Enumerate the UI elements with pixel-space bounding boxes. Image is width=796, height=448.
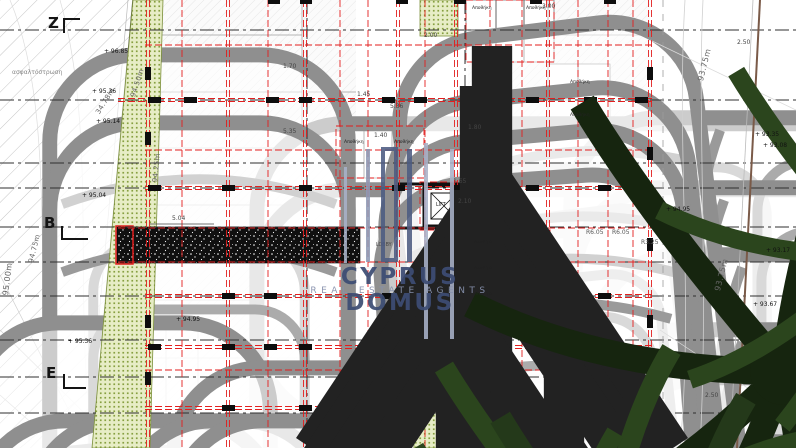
grid-letter-z: Z [48, 16, 59, 31]
dim-1-80: 1.80 [468, 125, 481, 131]
dim-1-65: 1.65 [453, 179, 466, 185]
dim-1-45: 1.45 [357, 92, 370, 98]
dim-5-35: 5.35 [283, 129, 296, 135]
storage-label: Αποθήκη [570, 80, 590, 85]
grid-letter-b: B [44, 216, 55, 231]
dim-2-50-top: 2.50 [737, 40, 750, 46]
elevation-95-36-a: + 95.36 [92, 89, 116, 95]
elevation-93-17: + 93.17 [766, 248, 790, 254]
plan-drawing [0, 0, 796, 448]
storage-label: Αποθήκη [474, 240, 494, 245]
grid-letter-e: E [46, 366, 56, 381]
dim-2-10: 2.10 [458, 199, 471, 205]
storage-label: Αποθήκη [474, 292, 494, 297]
storage-label: Αποθήκη [394, 140, 414, 145]
elevation-93-08: + 93.08 [763, 143, 787, 149]
storage-label: Αποθήκη [344, 140, 364, 145]
dim-2-50-bottom: 2.50 [705, 393, 718, 399]
dim-5-36: 5.36 [390, 104, 403, 110]
asphalt-road-label: ασφαλτόστρωση [12, 70, 62, 76]
elevation-93-67: + 93.67 [753, 302, 777, 308]
elevation-95-04: + 95.04 [82, 193, 106, 199]
lobby-label: LOBBY [376, 243, 392, 248]
dim-5-04: 5.04 [172, 216, 185, 222]
radius-r325: R3.25 [641, 240, 659, 246]
storage-label: Αποθήκη [474, 266, 494, 271]
storage-label: Αποθήκη [472, 6, 492, 11]
dim-1-70: 1.70 [283, 64, 296, 70]
dim-2-00: 2.00 [424, 33, 437, 39]
lift-label: LIFT [436, 203, 446, 208]
asphalt-entrance-band [116, 226, 360, 264]
elevation-93-35: + 93.35 [755, 132, 779, 138]
elevation-94-95-b: + 94.95 [666, 207, 690, 213]
elevation-95-14: + 95.14 [96, 119, 120, 125]
elevation-96-85: + 96.85 [104, 49, 128, 55]
elevation-95-36-b: + 95.36 [68, 339, 92, 345]
floor-plan-canvas: Z B E ασφαλτόστρωση 95.00m 94.75m 34.78m… [0, 0, 796, 448]
dim-1-40: 1.40 [374, 133, 387, 139]
radius-r605-a: R6.05 [586, 230, 604, 236]
storage-label: Αποθήκη [526, 6, 546, 11]
radius-r605-b: R6.05 [612, 230, 630, 236]
storage-label: Αποθήκη [570, 113, 590, 118]
elevation-94-95-a: + 94.95 [176, 317, 200, 323]
